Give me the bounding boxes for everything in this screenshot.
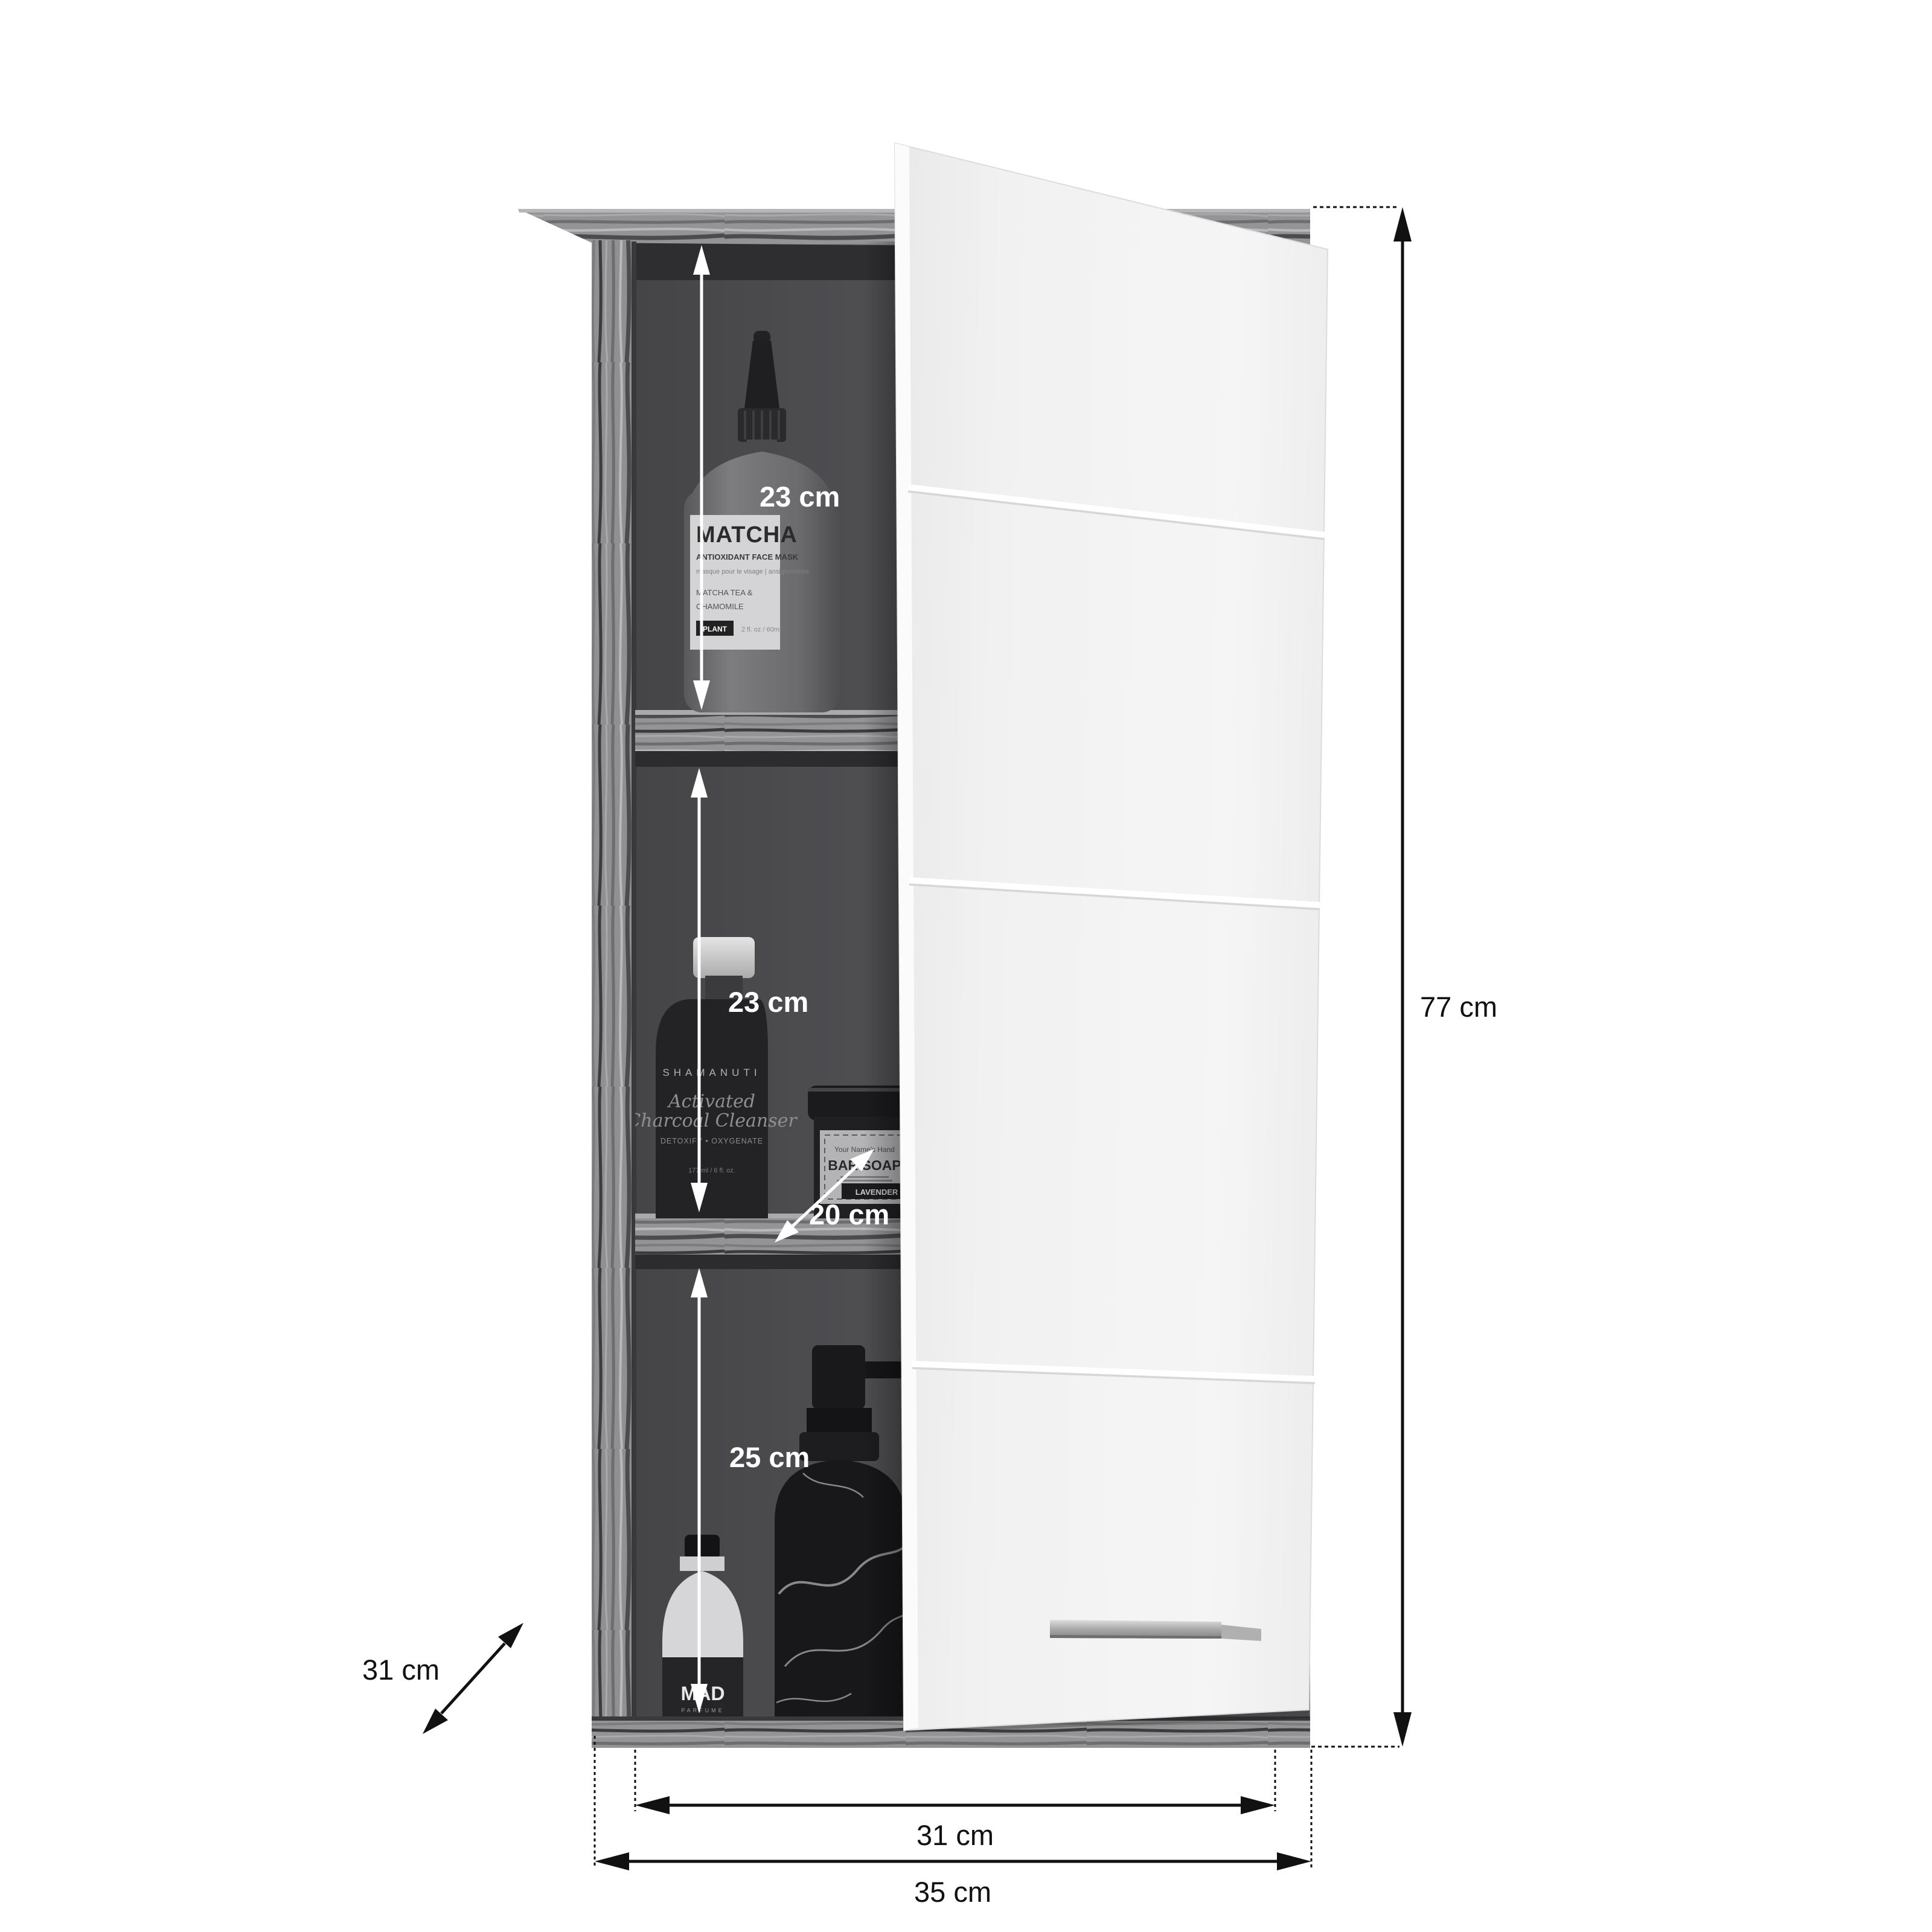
left-side-panel bbox=[592, 240, 635, 1748]
matcha-title: MATCHA bbox=[696, 522, 798, 548]
left-panel-inner-edge bbox=[632, 241, 636, 1716]
product-dimension-diagram: MATCHA ANTIOXIDANT FACE MASK masque pour… bbox=[0, 0, 1932, 1932]
dimension-label-jar-depth: 20 cm bbox=[809, 1198, 889, 1230]
cleanser-volume: 177 ml / 6 fl. oz. bbox=[688, 1167, 735, 1174]
door-panel bbox=[895, 143, 1328, 1730]
matcha-volume: 2 fl. oz / 60ml bbox=[741, 626, 781, 633]
dimension-label-bottom-compartment: 25 cm bbox=[729, 1441, 810, 1473]
dimension-label-inner-width: 31 cm bbox=[916, 1819, 994, 1851]
cabinet-illustration: MATCHA ANTIOXIDANT FACE MASK masque pour… bbox=[0, 0, 1932, 1932]
cleanser-script2: Charcoal Cleanser bbox=[627, 1110, 798, 1131]
dimension-line-depth bbox=[441, 1643, 505, 1713]
matcha-translation: masque pour le visage | ansigtsmaske bbox=[696, 568, 809, 575]
dimension-label-top-compartment: 23 cm bbox=[760, 481, 840, 513]
dimension-label-depth: 31 cm bbox=[362, 1654, 440, 1686]
matcha-badge: PLANT bbox=[703, 625, 728, 633]
dimension-label-middle-compartment: 23 cm bbox=[728, 986, 808, 1018]
perfume-sub: PARFUME bbox=[681, 1707, 724, 1713]
dispenser-pump bbox=[812, 1345, 865, 1409]
perfume-ring bbox=[680, 1556, 724, 1571]
perfume-cap bbox=[685, 1535, 720, 1559]
cleanser-brand: SHAMANUTI bbox=[662, 1067, 761, 1078]
dimension-label-total-width: 35 cm bbox=[914, 1876, 991, 1908]
matcha-ingredient2: CHAMOMILE bbox=[696, 602, 744, 611]
cleanser-script1: Activated bbox=[667, 1091, 755, 1112]
dimension-label-height: 77 cm bbox=[1420, 991, 1497, 1023]
cleanser-claim: DETOXIFY • OXYGENATE bbox=[661, 1137, 763, 1145]
cleanser-cap bbox=[693, 937, 755, 978]
cabinet-door bbox=[895, 143, 1328, 1733]
matcha-ingredient1: MATCHA TEA & bbox=[696, 588, 753, 597]
matcha-subtitle: ANTIOXIDANT FACE MASK bbox=[696, 552, 799, 561]
